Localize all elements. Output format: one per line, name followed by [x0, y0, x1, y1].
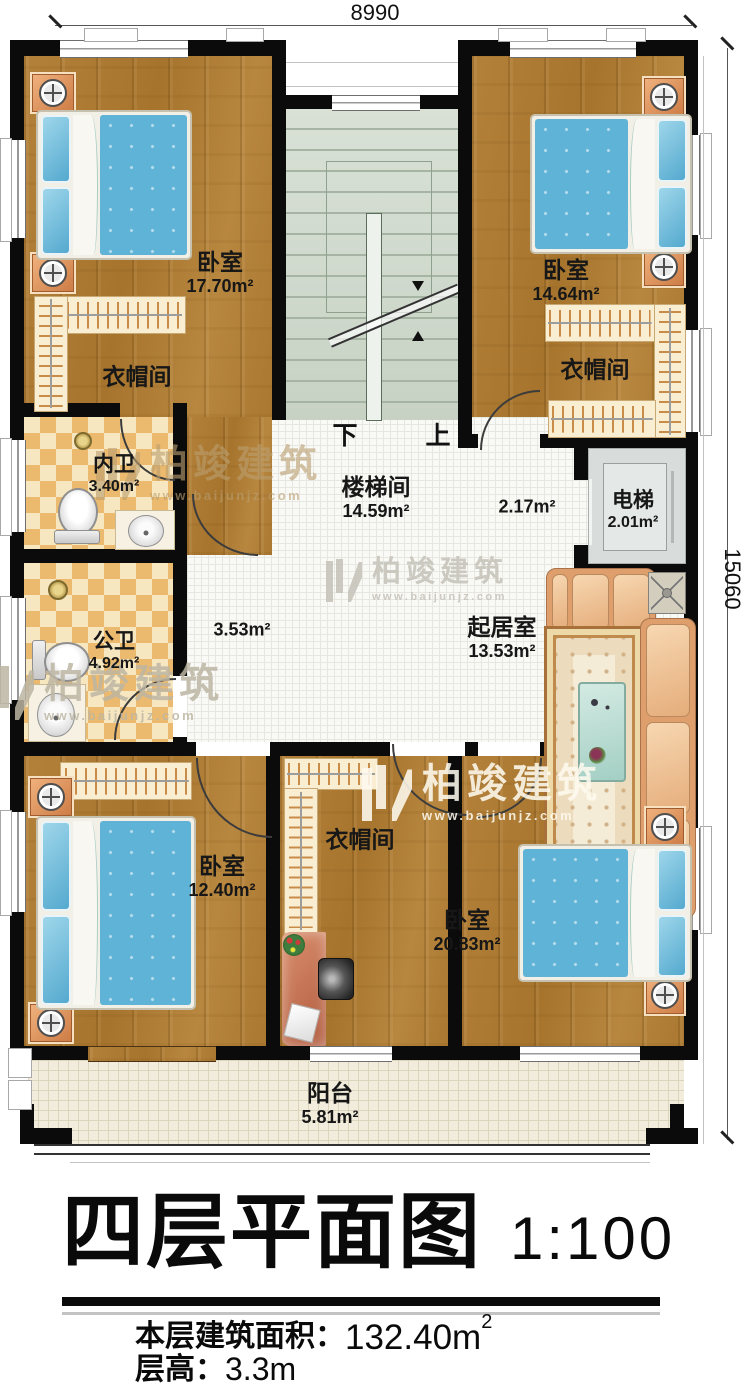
stairs: [286, 109, 458, 420]
bed-mattress: [100, 821, 191, 1005]
room-label-closet-tl: 衣帽间: [103, 363, 172, 390]
bed-mattress: [535, 119, 628, 249]
dimension-line-top: [55, 25, 692, 26]
closet-rail: [284, 758, 378, 790]
room-label-balcony: 阳台 5.81m²: [301, 1080, 358, 1128]
room-area: 17.70m²: [186, 276, 253, 297]
wall: [173, 403, 187, 417]
sill: [0, 438, 12, 536]
sill: [8, 1080, 32, 1110]
room-label-bedroom-tl: 卧室 17.70m²: [186, 249, 253, 297]
title-block: 四层平面图 1:100: [62, 1192, 675, 1274]
room-name: 卧室: [532, 257, 599, 284]
light-fixture: [48, 580, 68, 600]
closet-rail: [60, 762, 192, 800]
room-label-bedroom-br: 卧室 20.83m²: [433, 907, 500, 955]
balcony-post: [20, 1128, 72, 1144]
room-name: 阳台: [301, 1080, 358, 1107]
coffee-table: [578, 682, 626, 782]
room-name: 公卫: [89, 630, 140, 655]
floor-plan-canvas: 8990 15060: [0, 0, 750, 1384]
balcony-opening: [88, 1046, 216, 1062]
bed-blanket: [630, 119, 655, 249]
elevator-door-track: [671, 471, 674, 543]
sink-counter: [115, 510, 175, 550]
bed: [530, 114, 692, 254]
nightstand: [28, 776, 74, 818]
wall: [173, 563, 187, 676]
room-area: 14.64m²: [532, 284, 599, 305]
info-floor-height: 层高： 3.3m: [135, 1353, 296, 1388]
room-area: 3.40m²: [89, 478, 140, 497]
sill: [0, 810, 12, 916]
room-label-elevator: 电梯 2.01m²: [608, 489, 659, 533]
sink-counter: [28, 684, 86, 742]
area-label-landing: 2.17m²: [498, 496, 555, 517]
room-label-bath-public: 公卫 4.92m²: [89, 630, 140, 674]
bed-pillows: [41, 821, 71, 1005]
room-name: 起居室: [468, 614, 537, 641]
stair-up-label: 上: [425, 416, 450, 452]
area-label-hallway: 3.53m²: [213, 619, 270, 640]
sill: [606, 28, 646, 42]
room-area: 3.53m²: [213, 619, 270, 640]
room-area: 20.83m²: [433, 934, 500, 955]
window: [10, 598, 26, 700]
plant: [283, 934, 305, 956]
balcony-railing: [34, 1144, 650, 1155]
sofa-armrest: [552, 574, 568, 630]
bed: [36, 110, 192, 260]
wall: [472, 434, 478, 448]
room-area: 4.92m²: [89, 655, 140, 674]
sill: [700, 133, 712, 239]
sink: [37, 693, 75, 737]
wall: [173, 417, 187, 555]
info-floor-area: 本层建筑面积： 132.40m 2: [135, 1320, 492, 1355]
room-name: 楼梯间: [342, 474, 411, 501]
bed: [36, 816, 196, 1010]
bed-mattress: [523, 849, 628, 977]
wall: [272, 40, 286, 420]
sofa-cushion: [646, 624, 690, 717]
wall: [24, 549, 187, 563]
sill: [700, 826, 712, 934]
balcony-post: [646, 1128, 698, 1144]
wall: [458, 40, 472, 448]
sill: [84, 28, 138, 42]
title-underline: [62, 1297, 660, 1306]
window: [60, 40, 188, 58]
floor-area-sup: 2: [481, 1312, 492, 1332]
wall: [574, 448, 588, 480]
window: [310, 1046, 392, 1062]
nightstand: [642, 76, 686, 118]
sill: [700, 328, 712, 436]
dimension-height: 15060: [719, 544, 745, 614]
nightstand: [644, 806, 686, 848]
window: [332, 95, 420, 111]
dimension-tick: [49, 14, 63, 28]
bed: [518, 844, 692, 982]
sill-line: [286, 86, 458, 87]
bed-blanket: [73, 821, 98, 1005]
drawing-scale: 1:100: [510, 1209, 675, 1274]
floor-height-value: 3.3m: [225, 1353, 296, 1385]
sill-line: [70, 1162, 650, 1163]
light-fixture: [74, 432, 92, 450]
window: [684, 330, 700, 432]
room-area: 5.81m²: [301, 1107, 358, 1128]
sofa-cushion: [646, 722, 690, 815]
bed-blanket: [73, 115, 98, 255]
bed-pillows: [657, 119, 687, 249]
stair-arrow-up-icon: [412, 331, 424, 341]
window: [10, 140, 26, 238]
room-label-stairwell: 楼梯间 14.59m²: [342, 474, 411, 522]
wall: [24, 742, 196, 756]
closet-rail: [545, 304, 655, 342]
room-name: 卧室: [186, 249, 253, 276]
room-label-bath-inner: 内卫 3.40m²: [89, 453, 140, 497]
nightstand: [30, 72, 76, 114]
closet-rail: [654, 304, 686, 438]
dimension-width: 8990: [330, 0, 420, 26]
floor-area-value: 132.40m: [345, 1320, 481, 1355]
sill: [498, 28, 548, 42]
sill: [0, 596, 12, 704]
title-underline-thin: [62, 1312, 660, 1315]
elevator-door: [589, 479, 592, 545]
room-area: 2.01m²: [608, 514, 659, 533]
room-label-bedroom-bl: 卧室 12.40m²: [188, 853, 255, 901]
stair-arrow-down-icon: [412, 281, 424, 291]
sofa-cushion: [572, 574, 609, 630]
sill-line: [286, 62, 458, 63]
window: [10, 440, 26, 532]
sill-line: [703, 56, 704, 1144]
floor-area-label: 本层建筑面积：: [135, 1320, 345, 1355]
room-label-closet-bottom: 衣帽间: [326, 826, 395, 853]
window: [520, 1046, 640, 1062]
sill: [0, 138, 12, 242]
closet-rail: [284, 788, 318, 934]
room-name: 电梯: [608, 489, 659, 514]
sink: [128, 515, 164, 547]
floor-height-label: 层高：: [135, 1353, 225, 1388]
stair-down-label: 下: [332, 416, 357, 452]
room-name: 内卫: [89, 453, 140, 478]
room-name: 衣帽间: [103, 363, 172, 390]
room-area: 2.17m²: [498, 496, 555, 517]
bed-mattress: [100, 115, 187, 255]
room-label-closet-tr: 衣帽间: [561, 356, 630, 383]
closet-rail: [548, 400, 656, 438]
room-name: 卧室: [188, 853, 255, 880]
toilet: [44, 642, 90, 682]
closet-rail: [62, 296, 186, 334]
room-area: 12.40m²: [188, 880, 255, 901]
bed-pillows: [657, 849, 687, 977]
side-table: [648, 572, 686, 614]
room-label-living: 起居室 13.53m²: [468, 614, 537, 662]
closet-rail: [34, 296, 68, 412]
sill: [226, 28, 264, 42]
room-name: 衣帽间: [561, 356, 630, 383]
bed-blanket: [630, 849, 655, 977]
bed-pillows: [41, 115, 71, 255]
toilet-tank: [54, 530, 100, 544]
window: [510, 40, 636, 58]
room-name: 衣帽间: [326, 826, 395, 853]
computer-monitor: [318, 958, 354, 1000]
room-name: 卧室: [433, 907, 500, 934]
room-area: 13.53m²: [468, 641, 537, 662]
room-area: 14.59m²: [342, 501, 411, 522]
sill: [8, 1048, 32, 1078]
dimension-tick: [684, 14, 698, 28]
window: [10, 812, 26, 912]
page-title: 四层平面图: [62, 1192, 482, 1274]
room-label-bedroom-tr: 卧室 14.64m²: [532, 257, 599, 305]
wall: [270, 742, 390, 756]
